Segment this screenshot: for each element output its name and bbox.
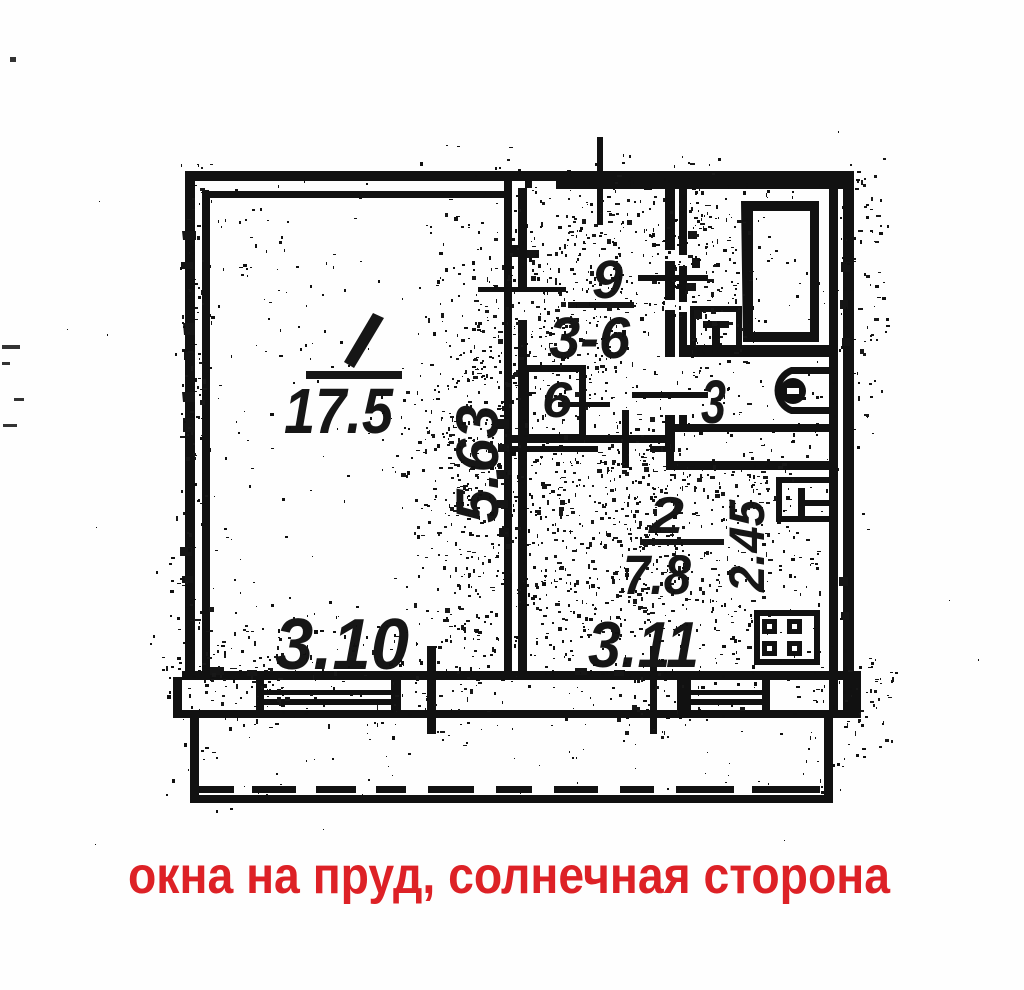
- svg-text:2: 2: [648, 487, 684, 545]
- svg-text:3-6: 3-6: [549, 306, 631, 371]
- svg-text:3.11: 3.11: [588, 608, 699, 681]
- svg-text:7.8: 7.8: [623, 543, 692, 606]
- svg-text:окна на пруд, солнечная сторон: окна на пруд, солнечная сторона: [128, 847, 891, 905]
- svg-text:17.5: 17.5: [284, 375, 394, 447]
- svg-text:3: 3: [701, 368, 726, 436]
- svg-text:2.45: 2.45: [719, 499, 775, 593]
- svg-text:9: 9: [592, 250, 623, 310]
